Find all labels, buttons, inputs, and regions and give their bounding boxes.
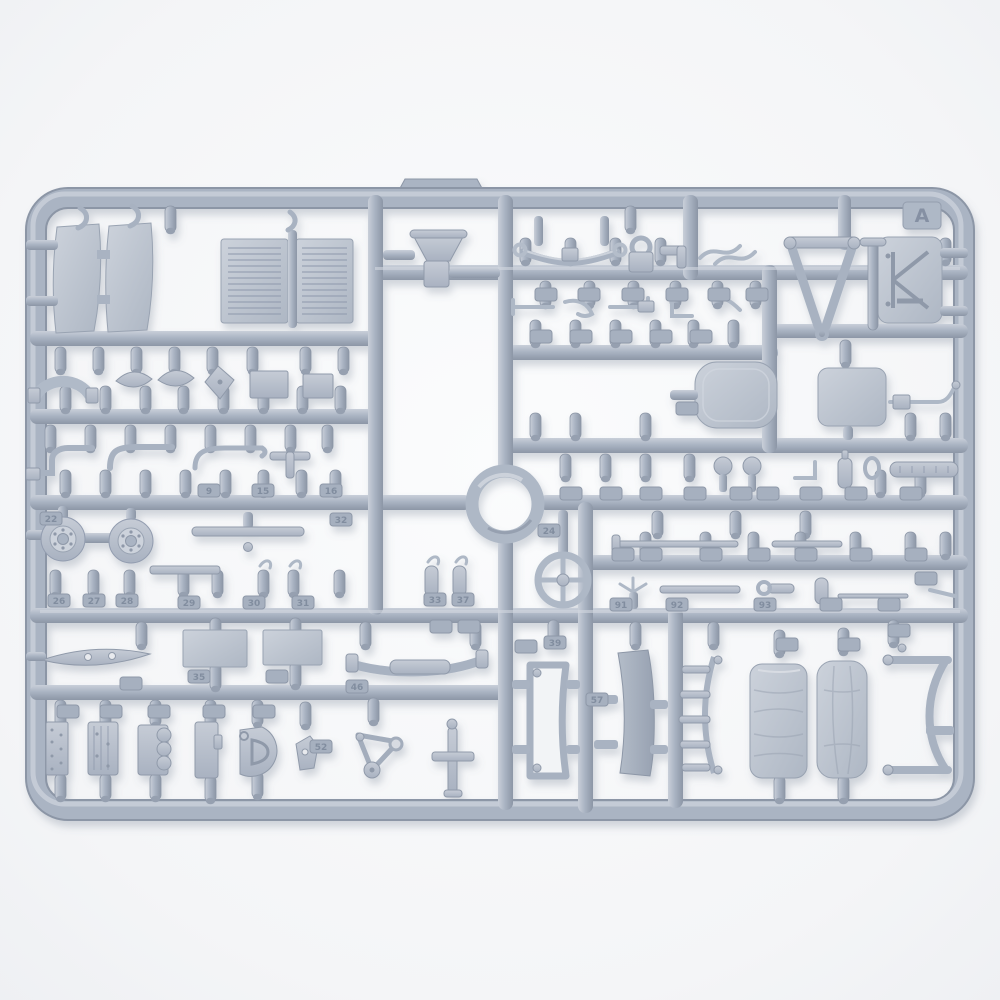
- part-number-tab: [915, 572, 937, 585]
- part-number-tab: 92: [666, 598, 688, 611]
- svg-text:46: 46: [351, 683, 364, 693]
- part-number-tab: 26: [48, 594, 70, 607]
- svg-text:28: 28: [121, 597, 134, 607]
- part-number-tab: [612, 548, 634, 561]
- part-number-tab: [746, 288, 768, 301]
- svg-text:52: 52: [315, 743, 328, 753]
- svg-text:57: 57: [591, 696, 604, 706]
- svg-text:30: 30: [248, 599, 261, 609]
- part-number-tab: [905, 548, 927, 561]
- part-number-tab: 35: [188, 670, 210, 683]
- part-number-tab: [148, 705, 170, 718]
- sprue-illustration: 2291516322627282930313337243946355752919…: [0, 0, 1000, 1000]
- part-number-tab: 32: [330, 513, 352, 526]
- svg-text:33: 33: [429, 596, 442, 606]
- part-number-tab: [888, 624, 910, 637]
- svg-text:93: 93: [759, 601, 772, 611]
- part-number-tab: [690, 330, 712, 343]
- svg-text:29: 29: [183, 599, 196, 609]
- part-number-tab: 52: [310, 740, 332, 753]
- part-number-tab: [430, 620, 452, 633]
- part-number-tab: [700, 548, 722, 561]
- part-number-tab: [640, 548, 662, 561]
- part-number-tab: [622, 288, 644, 301]
- part-number-tab: 30: [243, 596, 265, 609]
- part-number-tab: [776, 638, 798, 651]
- sprue-product-photo: 2291516322627282930313337243946355752919…: [0, 0, 1000, 1000]
- part-number-tab: [640, 487, 662, 500]
- part-number-tab: 37: [452, 593, 474, 606]
- part-number-tab: [757, 487, 779, 500]
- part-number-tab: 46: [346, 680, 368, 693]
- svg-text:15: 15: [257, 487, 270, 497]
- part-number-tab: 29: [178, 596, 200, 609]
- part-number-tab: [530, 330, 552, 343]
- part-number-tab: [838, 638, 860, 651]
- part-number-tab: [878, 598, 900, 611]
- part-number-tab: [800, 487, 822, 500]
- part-number-tab: [666, 288, 688, 301]
- part-number-tab: [535, 288, 557, 301]
- part-number-tab: [650, 330, 672, 343]
- part-number-tab: 31: [292, 596, 314, 609]
- part-number-tab: 33: [424, 593, 446, 606]
- part-number-tab: [708, 288, 730, 301]
- svg-text:39: 39: [549, 639, 562, 649]
- part-number-tab: [900, 487, 922, 500]
- part-number-tab: [266, 670, 288, 683]
- part-number-tab: 16: [320, 484, 342, 497]
- part-number-tab: [795, 548, 817, 561]
- part-number-tab: [570, 330, 592, 343]
- part-number-tab: 57: [586, 693, 608, 706]
- part-number-tab: 15: [252, 484, 274, 497]
- svg-text:16: 16: [325, 487, 338, 497]
- svg-text:32: 32: [335, 516, 348, 526]
- part-number-tab: [253, 705, 275, 718]
- part-number-tab: [676, 402, 698, 415]
- svg-text:35: 35: [193, 673, 206, 683]
- part-number-tab: 27: [83, 594, 105, 607]
- part-number-tab: [748, 548, 770, 561]
- part-number-tab: [730, 487, 752, 500]
- svg-text:92: 92: [671, 601, 684, 611]
- part-number-tab: [850, 548, 872, 561]
- svg-text:91: 91: [615, 601, 628, 611]
- part-number-tab: [820, 598, 842, 611]
- part-number-tab: [515, 640, 537, 653]
- part-number-tab: 9: [198, 484, 220, 497]
- sprue-letter-tab: A: [903, 202, 941, 229]
- svg-text:9: 9: [206, 487, 212, 497]
- part-number-tab: [684, 487, 706, 500]
- part-number-tab: 24: [538, 524, 560, 537]
- part-number-tab: [560, 487, 582, 500]
- part-number-tab: 22: [40, 512, 62, 525]
- part-number-tab: [100, 705, 122, 718]
- part-number-tab: 91: [610, 598, 632, 611]
- svg-text:31: 31: [297, 599, 310, 609]
- part-number-tab: [57, 705, 79, 718]
- part-number-tab: [845, 487, 867, 500]
- sprue-letter: A: [915, 205, 930, 227]
- part-number-tab: 39: [544, 636, 566, 649]
- svg-text:22: 22: [45, 515, 58, 525]
- part-number-tab: [120, 677, 142, 690]
- svg-text:24: 24: [543, 527, 556, 537]
- part-number-tab: [458, 620, 480, 633]
- part-number-tab: [578, 288, 600, 301]
- part-number-tab: [203, 705, 225, 718]
- svg-text:26: 26: [53, 597, 66, 607]
- part-number-tab: 93: [754, 598, 776, 611]
- part-number-tab: [600, 487, 622, 500]
- svg-text:27: 27: [88, 597, 101, 607]
- part-number-tab: [610, 330, 632, 343]
- svg-text:37: 37: [457, 596, 470, 606]
- part-number-tab: 28: [116, 594, 138, 607]
